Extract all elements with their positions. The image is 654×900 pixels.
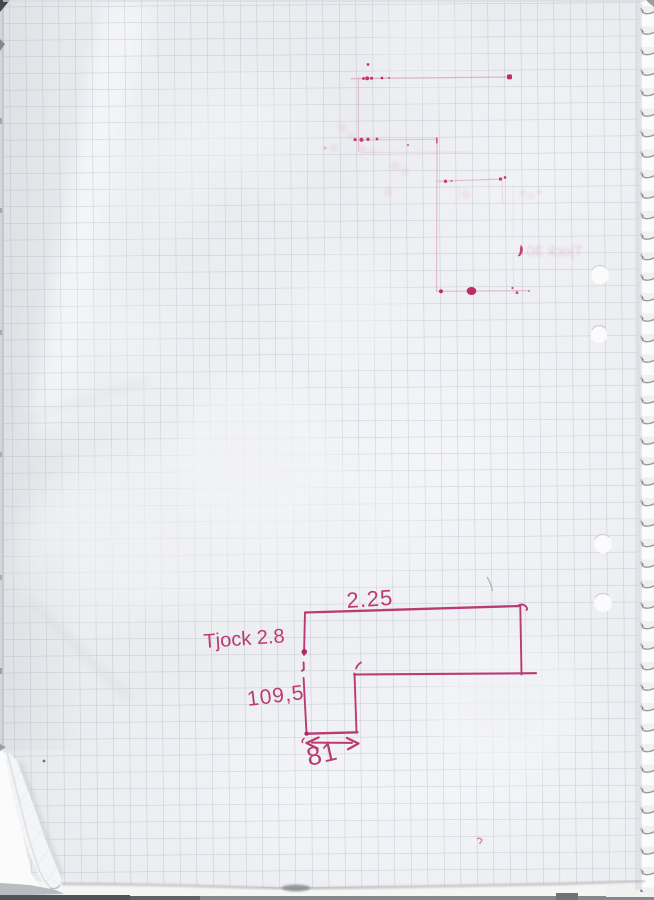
svg-text:Tjock 30: Tjock 30	[526, 243, 583, 260]
svg-text:2.25: 2.25	[346, 585, 394, 613]
